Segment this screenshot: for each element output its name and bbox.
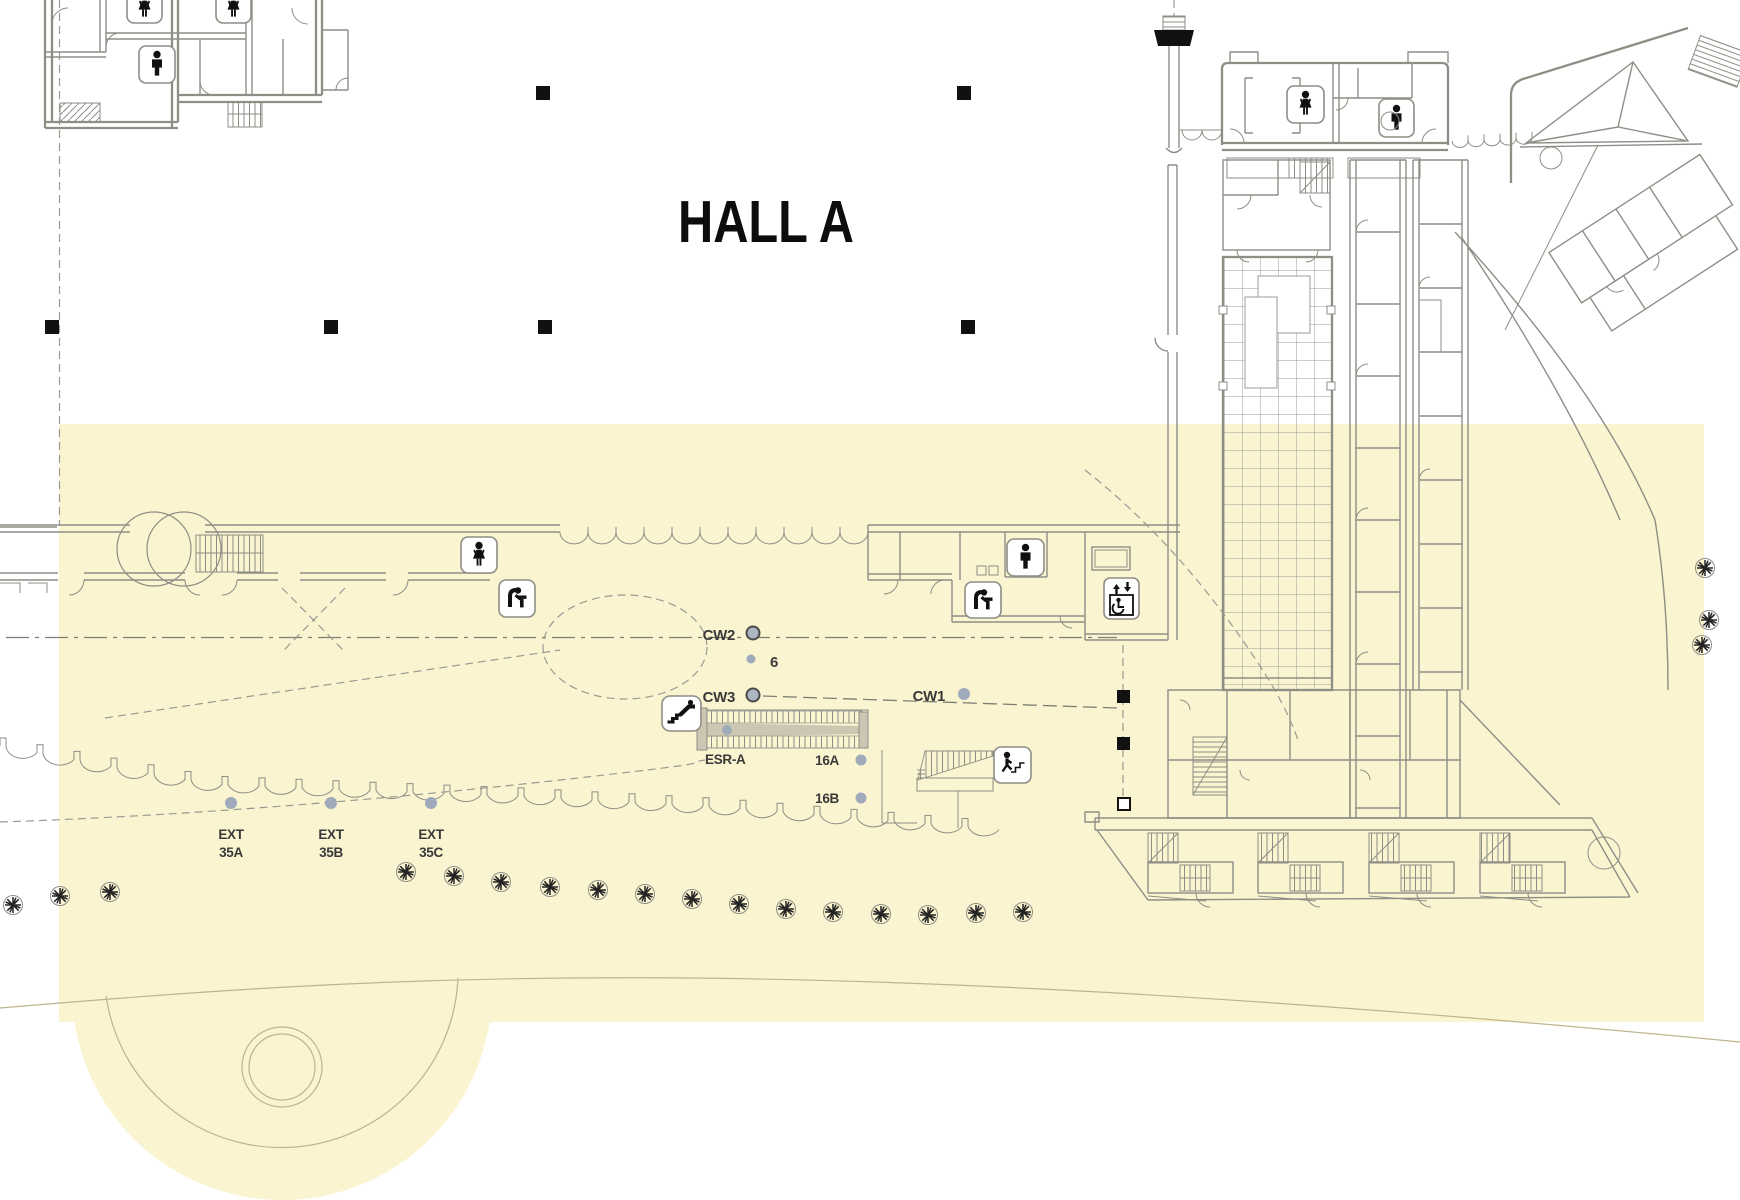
escalator-icon [662, 696, 701, 731]
building-rotated [1549, 154, 1740, 336]
tree-icon [492, 873, 511, 892]
label-16b: 16B [815, 791, 839, 806]
hall-a-label: HALL A [678, 189, 854, 255]
tree-icon [1696, 559, 1715, 578]
ext35a-label-1: EXT [218, 827, 244, 842]
column-marker [1117, 737, 1130, 750]
tree-icon [872, 905, 891, 924]
tree-icon [589, 881, 608, 900]
drinking-fountain-icon [965, 582, 1001, 618]
column-marker [538, 320, 552, 334]
tree-icon [919, 906, 938, 925]
tower-coil [1163, 16, 1185, 30]
tree-icon [4, 896, 23, 915]
ext35b-dot [325, 797, 337, 809]
ext35b-label-1: EXT [318, 827, 344, 842]
tree-icon [445, 867, 464, 886]
tree-icon [101, 883, 120, 902]
tree-icon [824, 903, 843, 922]
tree-icon [730, 895, 749, 914]
esr-a-label: ESR-A [705, 752, 746, 767]
cw2-dot [747, 627, 760, 640]
tree-icon [1693, 636, 1712, 655]
womens-restroom-icon [461, 537, 497, 573]
canopy-scallops [1452, 132, 1532, 147]
ext35b-label-2: 35B [319, 845, 343, 860]
column-marker [961, 320, 975, 334]
ext35a-label-2: 35A [219, 845, 243, 860]
tree-icon [967, 904, 986, 923]
cw1-dot [958, 688, 970, 700]
cw3-label: CW3 [703, 689, 735, 706]
tree-icon [636, 885, 655, 904]
label-16a: 16A [815, 753, 839, 768]
tower-cap [1154, 30, 1194, 46]
womens-restroom-icon [216, 0, 251, 23]
grid6-dot [747, 655, 756, 664]
column-marker [1117, 690, 1130, 703]
tree-icon [683, 890, 702, 909]
ext35c-dot [425, 797, 437, 809]
elevator-icon [1104, 578, 1139, 619]
cw3-dot [747, 689, 760, 702]
mens-restroom-icon [1007, 539, 1044, 576]
grid6-label: 6 [770, 654, 778, 671]
escalator-esr-a [697, 708, 868, 750]
tree-icon [777, 900, 796, 919]
ext35c-label-2: 35C [419, 845, 443, 860]
cw2-label: CW2 [703, 627, 735, 644]
ext35a-dot [225, 797, 237, 809]
mens-restroom-icon [139, 46, 175, 83]
stairs [1688, 36, 1740, 88]
ext35c-label-1: EXT [418, 827, 444, 842]
column-marker [957, 86, 971, 100]
floor-plan: HALL A CW2 CW3 CW1 6 ESR-A 16A 16B EXT 3… [0, 0, 1740, 1200]
ramp-hatch [60, 103, 100, 122]
womens-restroom-icon [1287, 86, 1324, 123]
tree-circle [1540, 147, 1562, 169]
mens-restroom-icon [1379, 99, 1414, 137]
womens-restroom-icon [127, 0, 162, 23]
tree-icon [397, 863, 416, 882]
building-top-right [1180, 52, 1448, 178]
stairs-icon [994, 747, 1031, 783]
drinking-fountain-icon [499, 580, 535, 617]
tree-icon [541, 878, 560, 897]
s16b-dot [856, 793, 867, 804]
column-marker [324, 320, 338, 334]
tree-icon [1700, 611, 1719, 630]
building-top-left [45, 0, 348, 128]
cw1-label: CW1 [913, 688, 945, 705]
tree-icon [51, 887, 70, 906]
column-marker [536, 86, 550, 100]
column-marker [45, 320, 59, 334]
tree-icon [1014, 903, 1033, 922]
s16a-dot [856, 755, 867, 766]
open-column-marker [1118, 798, 1130, 810]
